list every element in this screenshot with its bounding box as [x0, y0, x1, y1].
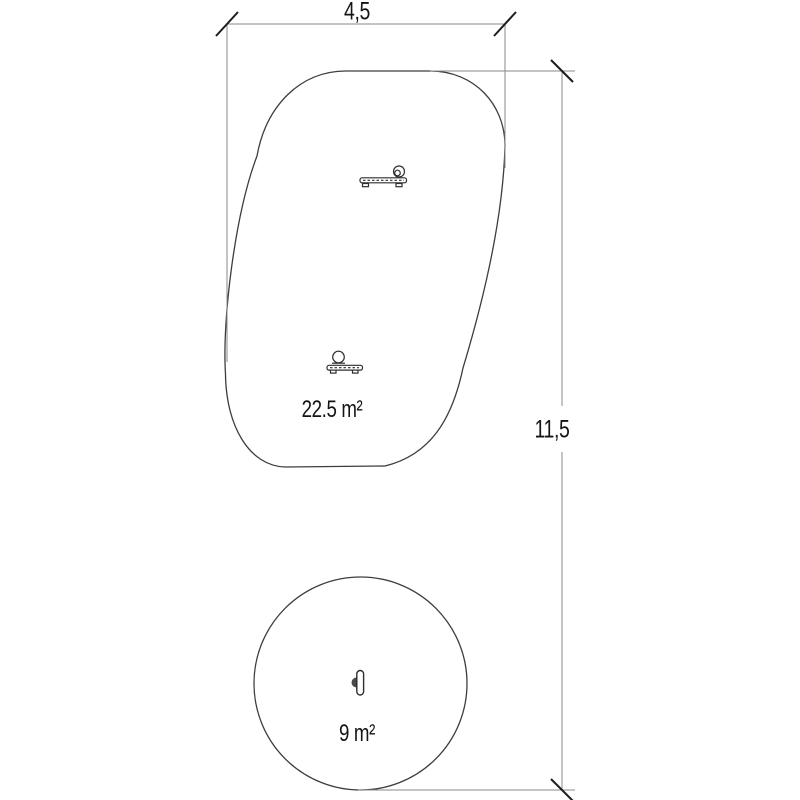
freeform-zone-area-label: 22.5 m²	[302, 398, 363, 422]
drawing-linework	[0, 0, 800, 800]
technical-drawing-canvas: 4,5 11,5 22.5 m² 9 m²	[0, 0, 800, 800]
spinner-post-icon	[352, 671, 364, 696]
spring-rider-bottom-icon	[327, 351, 363, 373]
width-dimension-label: 4,5	[344, 0, 370, 25]
circle-zone-area-label: 9 m²	[339, 722, 375, 746]
freeform-zone-outline	[225, 71, 505, 467]
height-dimension-label: 11,5	[535, 418, 570, 443]
spring-rider-top-icon	[360, 166, 407, 187]
